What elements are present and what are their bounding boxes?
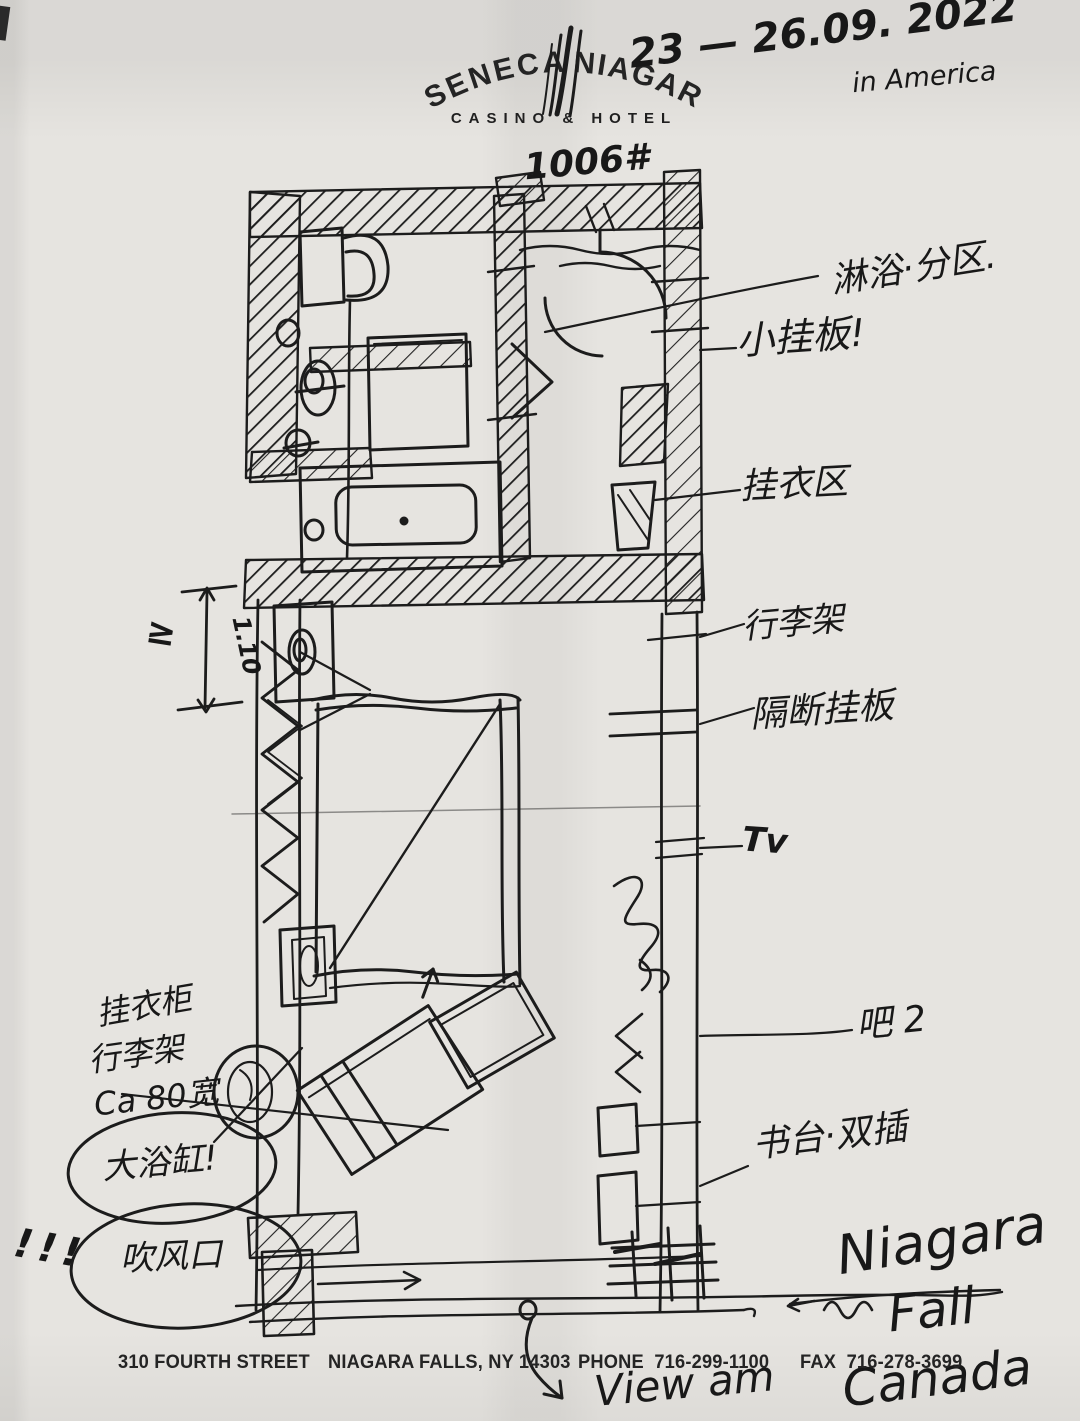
vanity-sink (277, 300, 468, 558)
corridor-closet (612, 482, 655, 550)
footer-fax: FAX 716-278-3699 (800, 1352, 962, 1374)
ottoman (430, 972, 555, 1088)
note-small-hanging-board: 小挂板! (735, 314, 867, 363)
note-coat-hanging-area: 挂衣区 (739, 463, 849, 506)
footer-address: 310 FOURTH STREET (118, 1352, 310, 1374)
footer-city: NIAGARA FALLS, NY 14303 (328, 1352, 571, 1374)
right-wall (610, 612, 706, 1312)
toilet (300, 228, 388, 306)
footer-phone: PHONE 716-299-1100 (578, 1352, 769, 1374)
floor-plan-sketch (0, 0, 1080, 1421)
desk-chairs (598, 1104, 638, 1244)
left-wall-closet (256, 600, 302, 1310)
note-luggage-rack: 行李架 (741, 602, 846, 646)
note-bar-counter: 吧 2 (854, 1000, 928, 1045)
note-blow-vent: 吹风口 (119, 1237, 223, 1278)
nightstand-lamp (274, 602, 370, 730)
window-table (280, 926, 336, 1006)
bed (312, 694, 520, 988)
scanned-sketch-page: SENECA NIAGARA CASINO & HOTEL (0, 0, 1080, 1421)
handwritten-fall: Fall (885, 1280, 977, 1341)
note-tv: Tv (741, 822, 789, 861)
balcony-grid (608, 1226, 718, 1300)
paper-crease (232, 806, 700, 814)
dim-min-symbol: ≥ (143, 612, 179, 654)
view-arrow (520, 1301, 562, 1398)
